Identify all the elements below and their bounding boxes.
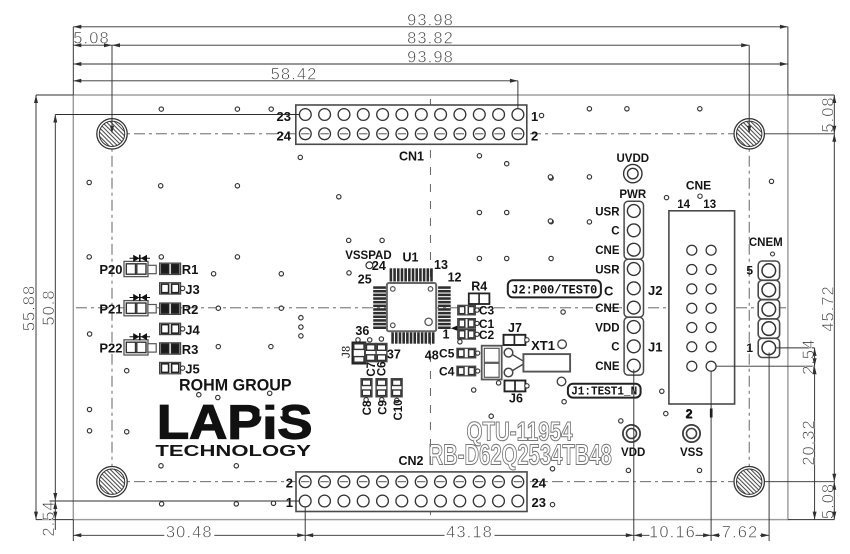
svg-text:CNE: CNE (595, 245, 620, 257)
svg-text:RB-D62Q2534TB48: RB-D62Q2534TB48 (428, 439, 612, 471)
svg-text:50.8: 50.8 (40, 289, 58, 325)
svg-text:5: 5 (746, 264, 753, 278)
svg-text:J1: J1 (648, 340, 662, 355)
svg-text:C10: C10 (393, 399, 405, 420)
svg-text:R4: R4 (471, 279, 487, 293)
svg-text:13: 13 (434, 258, 448, 272)
svg-text:J3: J3 (185, 282, 199, 297)
svg-text:12: 12 (448, 271, 462, 285)
svg-text:XT1: XT1 (531, 338, 555, 353)
svg-text:1: 1 (746, 341, 753, 355)
svg-text:C: C (611, 342, 619, 354)
svg-text:C5: C5 (439, 347, 455, 361)
svg-text:2: 2 (531, 128, 538, 143)
svg-text:CNE: CNE (595, 303, 620, 315)
svg-text:R3: R3 (182, 342, 199, 357)
svg-text:C: C (611, 226, 619, 238)
svg-text:J1:TEST1_N: J1:TEST1_N (571, 386, 637, 399)
svg-text:C4: C4 (439, 365, 455, 379)
svg-text:23: 23 (532, 495, 546, 510)
svg-text:CNE: CNE (595, 361, 620, 373)
svg-text:C3: C3 (479, 304, 495, 318)
svg-text:CNEM: CNEM (749, 237, 783, 249)
svg-text:VDD: VDD (595, 322, 619, 334)
svg-text:C2: C2 (479, 328, 495, 342)
svg-text:10.16: 10.16 (649, 523, 696, 541)
svg-text:USR: USR (595, 206, 620, 218)
svg-text:ROHM GROUP: ROHM GROUP (179, 375, 292, 394)
svg-text:J2: J2 (648, 283, 662, 298)
svg-text:1: 1 (531, 109, 538, 124)
svg-text:25: 25 (358, 273, 372, 287)
svg-text:USR: USR (595, 264, 620, 276)
svg-text:48: 48 (425, 349, 439, 363)
svg-text:PWR: PWR (619, 189, 647, 201)
svg-text:36: 36 (355, 324, 369, 338)
svg-text:43.18: 43.18 (446, 523, 493, 541)
svg-text:83.82: 83.82 (407, 30, 454, 48)
svg-text:C: C (604, 284, 614, 299)
svg-text:UVDD: UVDD (617, 153, 650, 165)
svg-text:24: 24 (532, 476, 547, 491)
svg-text:30.48: 30.48 (166, 523, 213, 541)
svg-text:23: 23 (277, 109, 291, 124)
svg-text:58.42: 58.42 (271, 65, 318, 83)
svg-text:37: 37 (387, 348, 401, 362)
svg-text:P21: P21 (99, 301, 122, 316)
svg-text:2: 2 (686, 407, 693, 421)
svg-text:VSSPAD: VSSPAD (345, 250, 391, 262)
svg-text:CN2: CN2 (398, 454, 423, 468)
svg-text:45.72: 45.72 (820, 285, 838, 331)
svg-text:J2:P00/TEST0: J2:P00/TEST0 (511, 283, 597, 297)
svg-text:LAPIS: LAPIS (157, 397, 313, 450)
svg-text:J8: J8 (341, 345, 353, 358)
svg-text:C8: C8 (362, 400, 374, 415)
svg-text:93.98: 93.98 (407, 49, 454, 67)
svg-text:2: 2 (286, 476, 293, 491)
svg-text:R1: R1 (182, 262, 199, 277)
svg-text:C6: C6 (377, 361, 389, 376)
svg-text:1: 1 (286, 495, 293, 510)
svg-text:U1: U1 (403, 251, 419, 265)
svg-text:55.88: 55.88 (21, 285, 39, 331)
svg-text:14: 14 (677, 199, 690, 211)
svg-text:CN1: CN1 (399, 150, 424, 164)
svg-text:P20: P20 (99, 262, 122, 277)
svg-text:R2: R2 (182, 302, 199, 317)
svg-text:J6: J6 (509, 392, 523, 406)
svg-text:VDD: VDD (621, 447, 645, 459)
svg-text:CNE: CNE (686, 178, 711, 192)
svg-text:7.62: 7.62 (722, 523, 759, 541)
svg-text:13: 13 (703, 199, 716, 211)
svg-text:J4: J4 (185, 322, 200, 337)
svg-text:VSS: VSS (680, 447, 703, 459)
svg-text:1: 1 (443, 328, 450, 342)
svg-text:C9: C9 (377, 400, 389, 415)
svg-text:93.98: 93.98 (407, 11, 454, 29)
svg-text:20.32: 20.32 (800, 419, 818, 465)
svg-text:P22: P22 (99, 341, 122, 356)
svg-text:J7: J7 (508, 321, 522, 335)
svg-text:24: 24 (277, 128, 292, 143)
svg-text:J5: J5 (185, 362, 199, 377)
svg-text:TECHNOLOGY: TECHNOLOGY (155, 443, 311, 460)
